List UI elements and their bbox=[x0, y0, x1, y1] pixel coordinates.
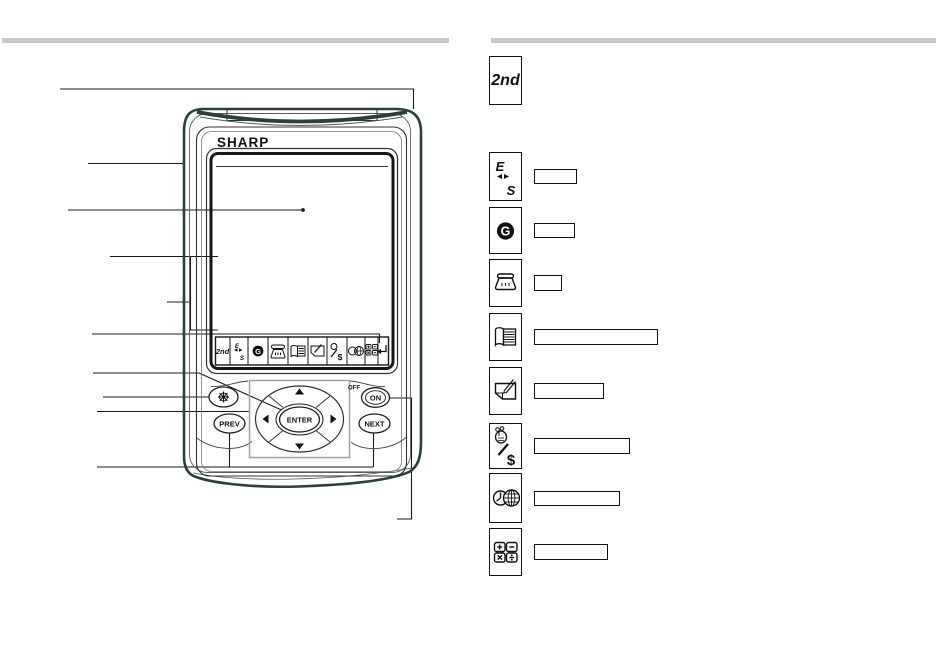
touch-key-phonebook-icon bbox=[291, 346, 305, 357]
touch-key-phone-icon bbox=[271, 345, 285, 358]
world-clock-key bbox=[489, 473, 522, 523]
section-rule-right bbox=[491, 38, 936, 43]
svg-text:G: G bbox=[255, 347, 261, 356]
prev-key: PREV bbox=[214, 414, 245, 433]
legend-row-phone bbox=[489, 259, 562, 307]
memo-key-icon bbox=[491, 369, 520, 413]
touch-key-world-clock-icon bbox=[349, 347, 364, 356]
callout-left-column-bracket bbox=[191, 257, 219, 331]
label-blank-schedule-money bbox=[534, 438, 630, 454]
legend-row-world-clock bbox=[489, 473, 620, 523]
svg-text:ON: ON bbox=[370, 393, 381, 402]
on-key: ON bbox=[362, 388, 390, 408]
device-bottom-lip bbox=[193, 468, 412, 479]
english-spanish-key-icon: E S bbox=[491, 155, 520, 199]
legend-row-memo bbox=[489, 367, 604, 415]
label-blank-calculator bbox=[534, 544, 608, 560]
svg-text:NEXT: NEXT bbox=[364, 419, 384, 428]
phone-key bbox=[489, 259, 522, 307]
lcd-frame bbox=[211, 154, 393, 369]
phone-key-icon bbox=[491, 261, 520, 305]
clock-key-icon: G bbox=[491, 209, 520, 253]
next-key: NEXT bbox=[359, 414, 390, 433]
arrow-right-icon bbox=[331, 415, 337, 424]
manual-page: SHARP 2nd E S G bbox=[0, 0, 936, 665]
legend-row-schedule-money: $ bbox=[489, 423, 630, 469]
svg-text:$: $ bbox=[338, 352, 343, 362]
touch-key-2nd: 2nd bbox=[215, 347, 230, 356]
legend-row-phonebook bbox=[489, 313, 658, 361]
off-label: OFF bbox=[348, 386, 360, 392]
label-blank-clock bbox=[534, 223, 575, 238]
world-clock-key-icon bbox=[491, 476, 520, 520]
svg-text:G: G bbox=[501, 224, 511, 238]
callout-dot-display bbox=[301, 208, 305, 212]
enter-key: ENTER bbox=[276, 404, 323, 435]
legend-2nd-key: 2nd bbox=[489, 56, 522, 105]
callout-enter-key bbox=[93, 373, 292, 415]
label-blank-phonebook bbox=[534, 329, 658, 345]
callout-touch-key-row bbox=[92, 334, 380, 343]
svg-text:PREV: PREV bbox=[219, 419, 239, 428]
brand-logo: SHARP bbox=[217, 135, 269, 150]
svg-text:ENTER: ENTER bbox=[287, 415, 313, 424]
screen-bezel bbox=[207, 149, 398, 374]
callout-on-key bbox=[387, 398, 412, 519]
touch-key-memo-icon bbox=[311, 345, 324, 357]
svg-text:S: S bbox=[240, 356, 244, 362]
legend-row-clock: G bbox=[489, 207, 575, 254]
schedule-money-key: $ bbox=[489, 423, 522, 469]
calculator-key-icon bbox=[491, 530, 520, 574]
device-illustration: SHARP 2nd E S G bbox=[0, 0, 470, 600]
schedule-money-key-icon: $ bbox=[491, 424, 520, 468]
english-spanish-key: E S bbox=[489, 152, 522, 201]
svg-text:S: S bbox=[507, 183, 516, 198]
svg-text:$: $ bbox=[507, 452, 516, 468]
legend-row-english-spanish: E S bbox=[489, 152, 577, 201]
phonebook-key-icon bbox=[491, 315, 520, 359]
arrow-up-icon bbox=[295, 389, 304, 395]
backlight-key bbox=[209, 387, 238, 407]
label-blank-world-clock bbox=[534, 491, 620, 506]
phonebook-key bbox=[489, 313, 522, 361]
touch-key-calculator-icon bbox=[366, 345, 378, 356]
touch-key-schedule-money-icon: $ bbox=[331, 344, 343, 363]
touch-key-english-spanish-icon: E S bbox=[234, 344, 244, 362]
arrow-down-icon bbox=[295, 444, 304, 450]
touch-key-enter-icon bbox=[378, 345, 387, 354]
calculator-key bbox=[489, 528, 522, 576]
label-blank-english-spanish bbox=[534, 169, 577, 184]
legend-row-calculator bbox=[489, 528, 608, 576]
arrow-left-icon bbox=[263, 415, 269, 424]
callout-top-cover bbox=[60, 89, 414, 109]
touch-key-clock-icon: G bbox=[253, 346, 264, 357]
label-blank-memo bbox=[534, 383, 604, 399]
memo-key bbox=[489, 367, 522, 415]
svg-text:E: E bbox=[496, 159, 505, 174]
backlight-icon bbox=[218, 392, 229, 403]
clock-key: G bbox=[489, 207, 522, 254]
legend-2nd-key-label: 2nd bbox=[491, 72, 519, 90]
label-blank-phone bbox=[534, 275, 562, 291]
